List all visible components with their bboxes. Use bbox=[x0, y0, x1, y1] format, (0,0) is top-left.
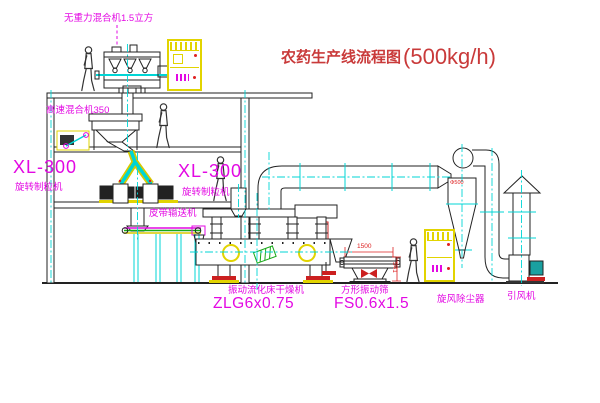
indicator-light bbox=[447, 267, 450, 270]
control-cabinet-lower bbox=[424, 229, 455, 282]
label-belt-conveyor: 皮带输送机 bbox=[149, 209, 197, 219]
cabinet-vent-grille bbox=[427, 232, 452, 241]
cabinet-vent-grille bbox=[170, 42, 199, 51]
granulator-units bbox=[99, 180, 178, 203]
label-high-speed-mixer: 高速混合机350 bbox=[46, 106, 109, 116]
cabinet-upper-panel bbox=[170, 52, 199, 68]
worker-figure bbox=[157, 104, 169, 148]
dimension-sieve-length: 1500 bbox=[357, 244, 371, 251]
belt-conveyor-machine bbox=[122, 226, 205, 282]
cyclone-outlet-duct bbox=[472, 150, 509, 278]
cabinet-buttons bbox=[176, 74, 189, 81]
control-cabinet-upper bbox=[167, 39, 202, 91]
indicator-light bbox=[447, 243, 450, 246]
dimension-cyclone-diameter: Φ500 bbox=[450, 181, 464, 187]
indicator-light bbox=[193, 76, 196, 79]
label-dryer-model: ZLG6x0.75 bbox=[213, 296, 294, 312]
label-cyclone: 旋风除尘器 bbox=[437, 295, 485, 305]
y-chute bbox=[121, 151, 151, 184]
cabinet-lower-panel bbox=[170, 68, 199, 88]
title-capacity: (500kg/h) bbox=[403, 44, 496, 70]
worker-figure bbox=[82, 47, 94, 91]
label-granulator-mid-model: XL-300 bbox=[178, 162, 242, 180]
worker-figure bbox=[407, 239, 419, 283]
cabinet-upper-panel bbox=[427, 242, 452, 258]
induced-draft-fan bbox=[506, 255, 545, 284]
high-speed-mixer-machine bbox=[57, 114, 142, 151]
gravity-free-mixer-machine bbox=[95, 45, 171, 93]
label-fan: 引风机 bbox=[507, 292, 536, 302]
label-granulator-mid-name: 旋转制粒机 bbox=[182, 188, 230, 198]
label-sieve-model: FS0.6x1.5 bbox=[334, 296, 409, 312]
exhaust-duct-main bbox=[258, 163, 451, 209]
dimension-sieve-height: 541 bbox=[391, 262, 398, 273]
cabinet-lower-panel bbox=[427, 258, 452, 278]
title-text: 农药生产线流程图 bbox=[281, 46, 401, 70]
process-flow-diagram: 农药生产线流程图 (500kg/h) 无重力混合机1.5立方 高速混合机350 … bbox=[0, 0, 600, 403]
cabinet-window bbox=[173, 54, 183, 64]
label-gravity-free-mixer: 无重力混合机1.5立方 bbox=[64, 14, 153, 24]
exhaust-stack bbox=[504, 176, 540, 255]
label-granulator-left-model: XL-300 bbox=[13, 158, 77, 176]
fluid-bed-dryer-machine bbox=[196, 205, 352, 283]
indicator-light bbox=[194, 54, 197, 57]
cabinet-buttons bbox=[432, 265, 444, 272]
label-granulator-left-name: 旋转制粒机 bbox=[15, 183, 63, 193]
drawing-title: 农药生产线流程图 (500kg/h) bbox=[281, 44, 496, 70]
